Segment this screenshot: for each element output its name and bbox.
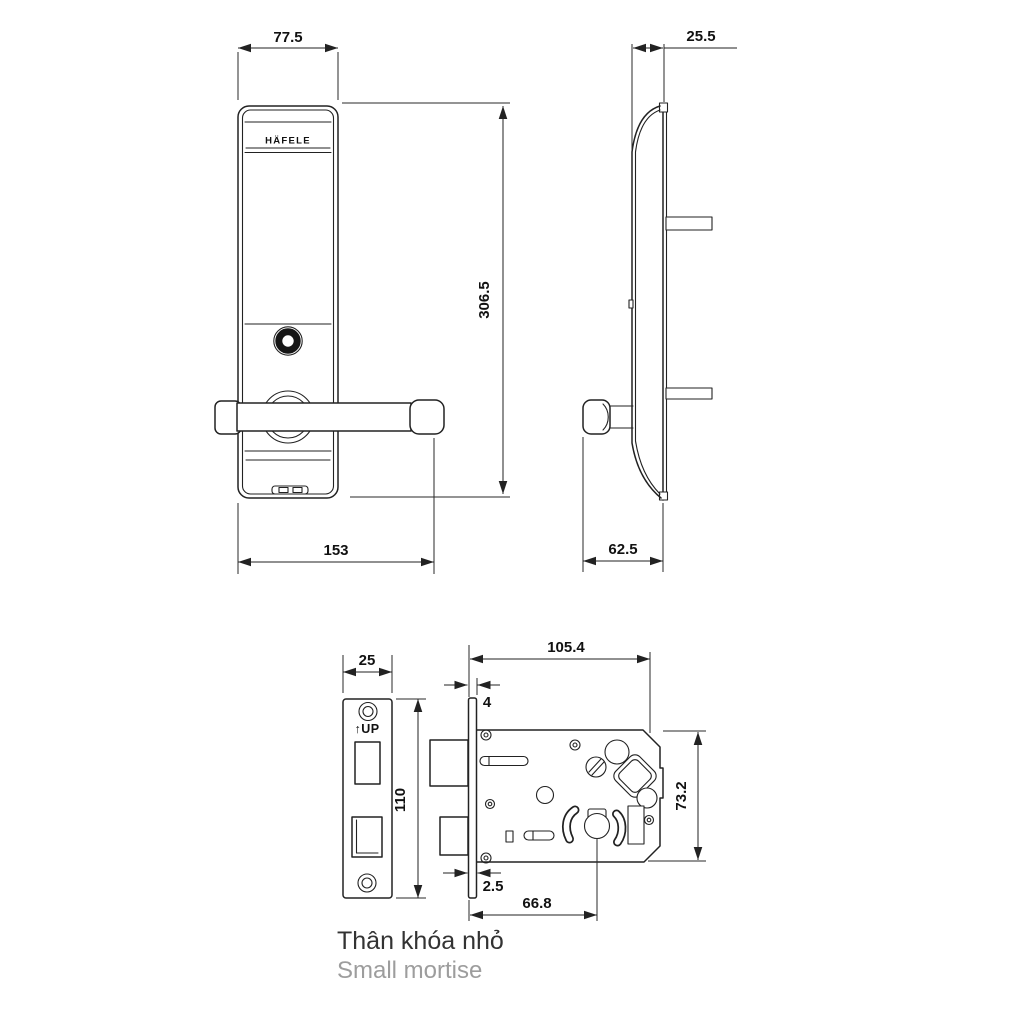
- side-view: 25.5 62.5: [583, 28, 737, 572]
- mortise-body-view: 105.4 4 73.2 2.5 66.8: [430, 639, 706, 921]
- brand-logo: HÄFELE: [265, 136, 311, 147]
- front-body-outline: [238, 106, 338, 498]
- caption-secondary: Small mortise: [337, 956, 504, 986]
- lock-dimension-drawing: HÄFELE: [0, 0, 1024, 1024]
- side-latch-bar-bottom: [666, 388, 712, 399]
- technical-drawing-page: HÄFELE: [0, 0, 1024, 1024]
- side-handle: [583, 400, 633, 434]
- dim-backset-label: 66.8: [522, 895, 551, 912]
- dim-edge-offset-label: 2.5: [483, 878, 504, 895]
- dim-mortise-width-label: 105.4: [547, 639, 585, 656]
- hatched-screw-hole: [586, 757, 606, 777]
- cylinder-hole: [585, 809, 610, 839]
- dim-faceplate-height-label: 110: [392, 788, 409, 812]
- dimension-front-total-width: 153: [238, 438, 434, 574]
- bolt-slot-rect: [628, 806, 644, 844]
- caption-primary: Thân khóa nhỏ: [337, 926, 504, 956]
- dim-front-height-label: 306.5: [476, 281, 493, 319]
- dimension-faceplate-width: 25: [343, 652, 392, 693]
- front-view: HÄFELE: [215, 29, 510, 574]
- side-face-top-cap: [660, 103, 668, 112]
- through-hole: [637, 788, 657, 808]
- mortise-faceplate-edge: [469, 698, 477, 898]
- side-back-notch: [629, 300, 633, 308]
- side-latch-bar-top: [666, 217, 712, 230]
- dim-side-handle-depth-label: 62.5: [608, 541, 637, 558]
- dimension-front-width: 77.5: [238, 29, 338, 100]
- up-orientation-label: ↑UP: [354, 722, 379, 736]
- usb-connector: [272, 486, 308, 494]
- handle-end-cap: [410, 400, 444, 434]
- side-handle-knob: [583, 400, 610, 434]
- mortise-deadbolt-block: [440, 817, 468, 855]
- dim-mortise-height-label: 73.2: [673, 781, 690, 810]
- front-body-inner-outline: [243, 110, 334, 494]
- keyhole: [274, 327, 302, 355]
- faceplate-view: ↑UP 25 110: [343, 652, 426, 898]
- side-housing-profile-outer: [632, 106, 661, 498]
- adjust-slot-bottom: [524, 831, 554, 840]
- side-face-bottom-cap: [660, 492, 668, 500]
- door-handle: [215, 400, 444, 434]
- dimension-side-depth: 25.5: [632, 28, 737, 150]
- dimension-front-height: 306.5: [342, 103, 510, 497]
- mortise-latch-block: [430, 740, 468, 786]
- handle-bar: [237, 403, 411, 431]
- dimension-mortise-width: 105.4: [469, 639, 650, 733]
- dim-faceplate-width-label: 25: [359, 652, 376, 669]
- dimension-faceplate-height: 110: [392, 699, 426, 898]
- dim-front-total-width-label: 153: [323, 542, 348, 559]
- dimension-side-handle-depth: 62.5: [583, 437, 663, 572]
- adjust-slot-top: [480, 757, 528, 766]
- caption: Thân khóa nhỏ Small mortise: [337, 926, 504, 986]
- dim-faceplate-thickness-label: 4: [483, 694, 492, 711]
- dim-front-width-label: 77.5: [273, 29, 302, 46]
- small-square-hole: [506, 831, 513, 842]
- side-housing-profile-inner: [636, 110, 661, 494]
- dim-side-depth-label: 25.5: [686, 28, 715, 45]
